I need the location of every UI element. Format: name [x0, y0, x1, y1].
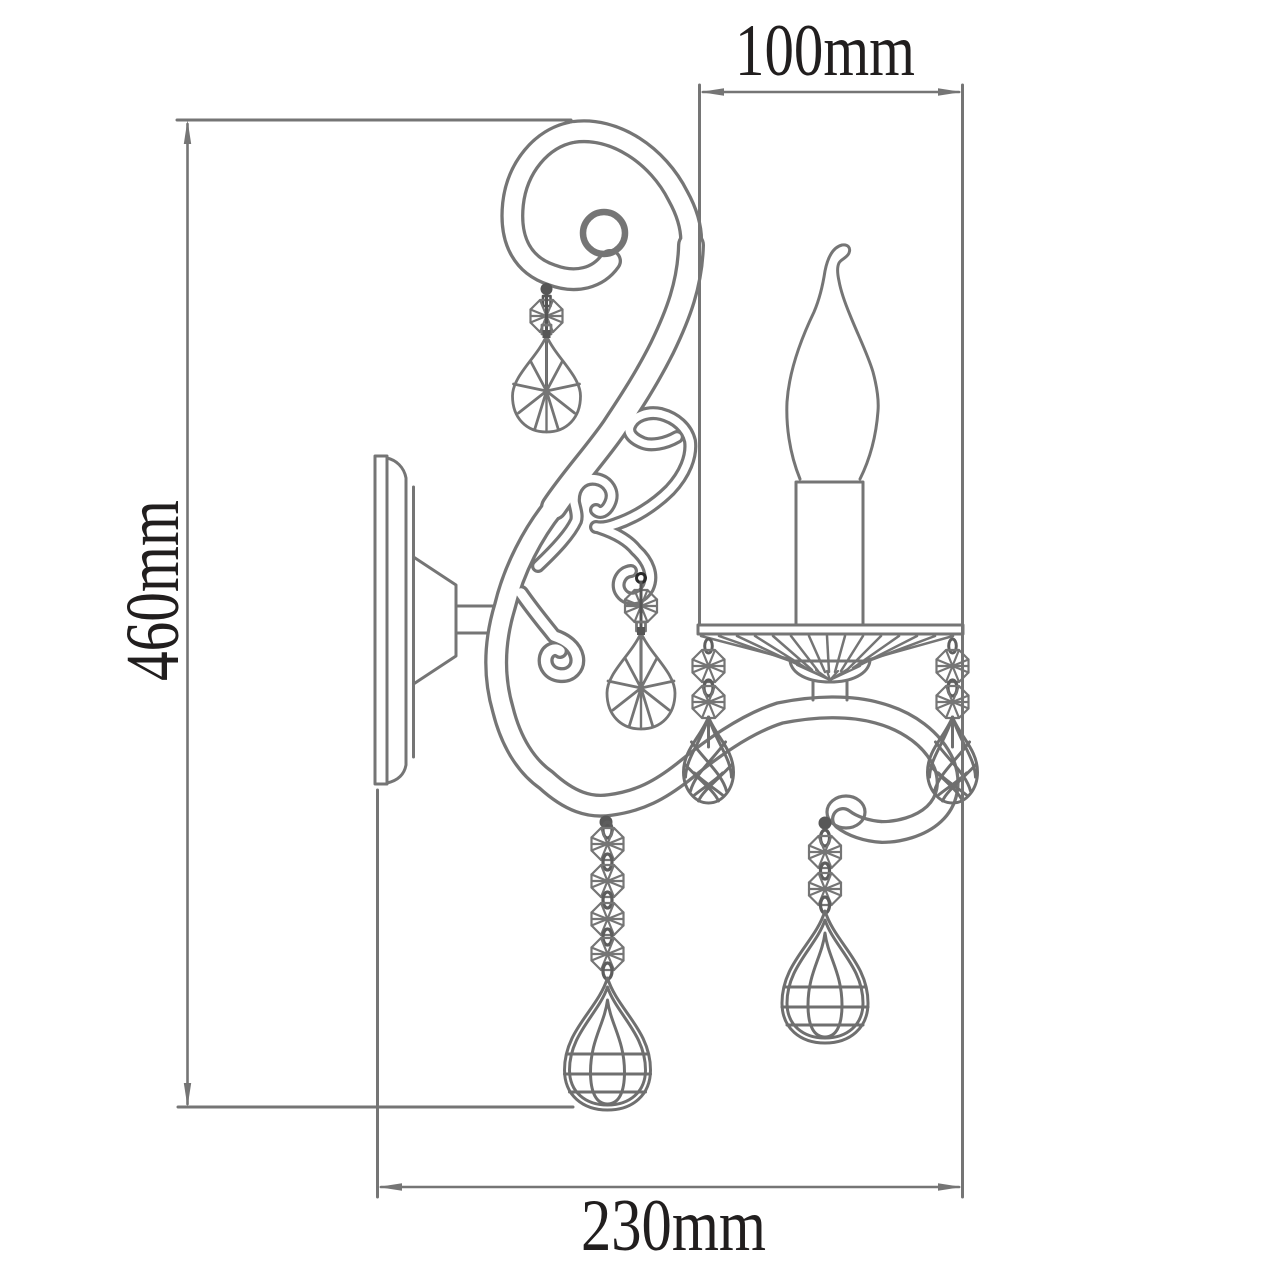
svg-text:100mm: 100mm	[735, 10, 915, 92]
svg-text:230mm: 230mm	[581, 1185, 766, 1267]
svg-text:460mm: 460mm	[111, 500, 195, 681]
